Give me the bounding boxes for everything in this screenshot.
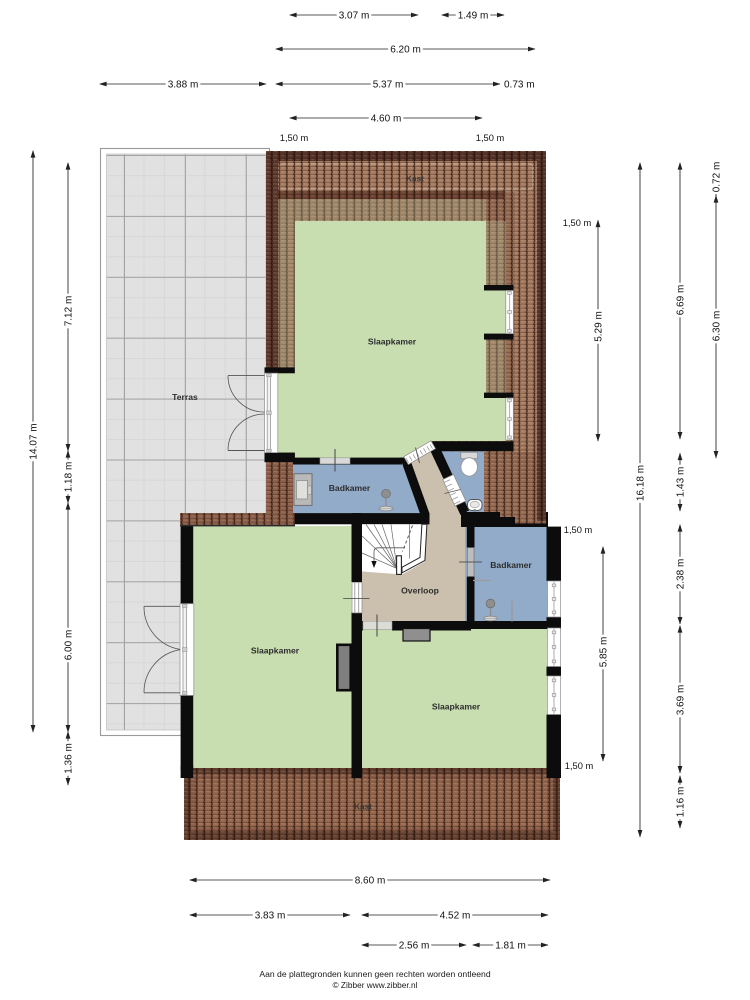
- svg-text:0.73 m: 0.73 m: [504, 79, 535, 90]
- svg-text:3.83 m: 3.83 m: [255, 910, 286, 921]
- svg-text:1,50 m: 1,50 m: [563, 218, 592, 228]
- svg-text:Overloop: Overloop: [401, 586, 439, 596]
- svg-text:1.81 m: 1.81 m: [495, 940, 526, 951]
- svg-text:Slaapkamer: Slaapkamer: [432, 702, 481, 712]
- svg-text:1.16 m: 1.16 m: [675, 787, 686, 818]
- svg-text:Terras: Terras: [172, 392, 198, 402]
- svg-text:Kast: Kast: [406, 175, 424, 184]
- svg-text:1,50 m: 1,50 m: [565, 761, 594, 771]
- svg-text:7.12 m: 7.12 m: [63, 296, 74, 327]
- svg-text:Badkamer: Badkamer: [329, 483, 371, 493]
- svg-text:6.00 m: 6.00 m: [63, 630, 74, 661]
- svg-text:4.60 m: 4.60 m: [371, 113, 402, 124]
- svg-text:1.36 m: 1.36 m: [63, 743, 74, 774]
- svg-text:5.85 m: 5.85 m: [598, 637, 609, 668]
- svg-text:3.07 m: 3.07 m: [339, 10, 370, 21]
- svg-text:3.69 m: 3.69 m: [675, 685, 686, 716]
- svg-text:6.69 m: 6.69 m: [675, 285, 686, 316]
- svg-text:© Zibber www.zibber.nl: © Zibber www.zibber.nl: [333, 980, 418, 990]
- svg-text:Aan de plattegronden kunnen ge: Aan de plattegronden kunnen geen rechten…: [259, 969, 490, 979]
- svg-text:1,50 m: 1,50 m: [280, 133, 309, 143]
- svg-text:1.49 m: 1.49 m: [458, 10, 489, 21]
- svg-text:1,50 m: 1,50 m: [476, 133, 505, 143]
- svg-text:6.20 m: 6.20 m: [390, 44, 421, 55]
- svg-text:1.18 m: 1.18 m: [63, 462, 74, 493]
- svg-text:3.88 m: 3.88 m: [168, 79, 199, 90]
- svg-text:4.52 m: 4.52 m: [440, 910, 471, 921]
- svg-text:5.29 m: 5.29 m: [593, 311, 604, 342]
- svg-text:2.38 m: 2.38 m: [675, 559, 686, 590]
- svg-text:1.43 m: 1.43 m: [675, 467, 686, 498]
- svg-text:1,50 m: 1,50 m: [564, 525, 593, 535]
- svg-text:2.56 m: 2.56 m: [399, 940, 430, 951]
- svg-text:0.72 m: 0.72 m: [711, 162, 722, 193]
- svg-text:5.37 m: 5.37 m: [373, 79, 404, 90]
- svg-text:6.30 m: 6.30 m: [711, 311, 722, 342]
- svg-text:8.60 m: 8.60 m: [355, 875, 386, 886]
- svg-text:Kast: Kast: [354, 803, 372, 812]
- svg-text:14.07 m: 14.07 m: [28, 423, 39, 459]
- svg-text:16.18 m: 16.18 m: [635, 465, 646, 501]
- svg-text:Badkamer: Badkamer: [490, 560, 532, 570]
- svg-text:Slaapkamer: Slaapkamer: [251, 646, 300, 656]
- svg-text:Slaapkamer: Slaapkamer: [368, 337, 417, 347]
